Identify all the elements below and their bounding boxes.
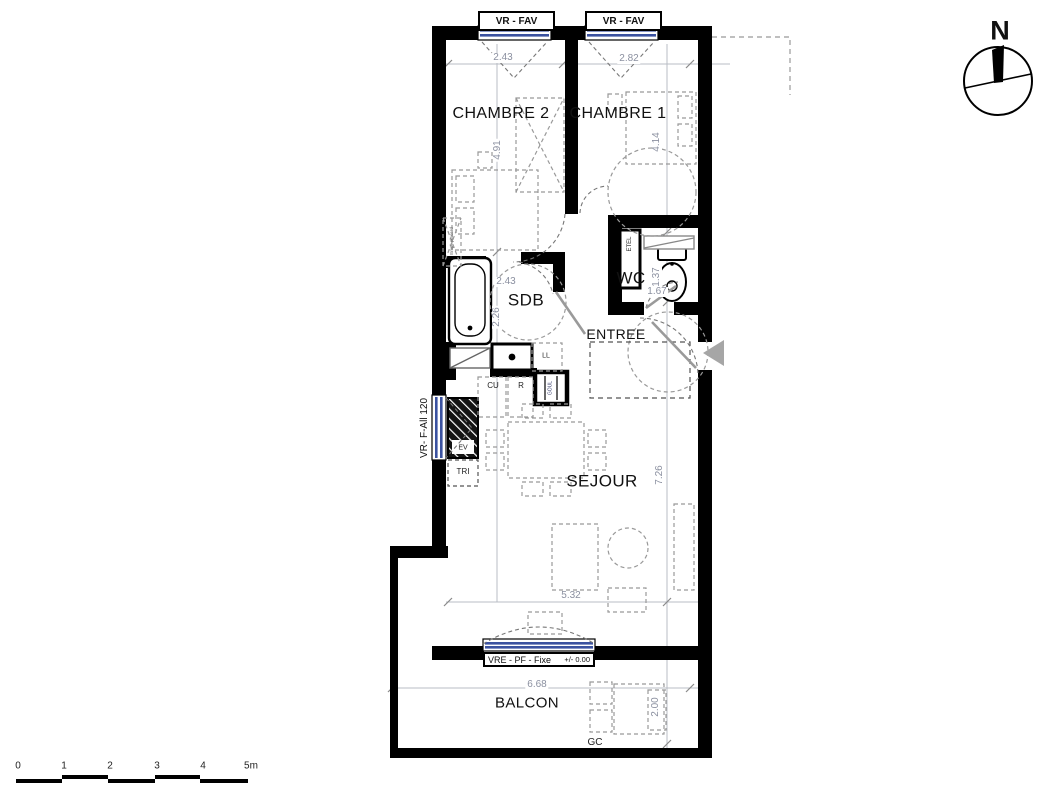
window-label-fav-1: VR - FAV	[478, 11, 555, 31]
dim-chambre1-height: 4.14	[652, 130, 662, 153]
fixture-label-cu: CU	[487, 382, 499, 390]
dim-chambre2-height: 4.91	[493, 138, 503, 161]
scale-tick-3: 3	[154, 761, 160, 772]
dim-window-chambre2: 2.43	[491, 53, 514, 63]
neighbour-outline	[712, 37, 790, 95]
scale-tick-2: 2	[107, 761, 113, 772]
label-gc: GC	[588, 738, 603, 748]
scale-tick-0: 0	[15, 761, 21, 772]
window-label-kitchen: VR- F-All 120	[420, 398, 430, 458]
room-label-wc: WC	[616, 270, 645, 287]
floor-plan-page: VR - FAV VR - FAV VRE - PF - Fixe +/- 0.…	[0, 0, 1054, 800]
room-label-sdb: SDB	[508, 292, 544, 309]
fixture-label-r: R	[518, 382, 524, 390]
room-label-entree: ENTREE	[586, 327, 645, 341]
bathtub	[449, 258, 491, 344]
dim-balcon-depth: 2.00	[651, 695, 661, 718]
dim-sejour-height: 7.26	[655, 463, 665, 486]
wc-shelf	[644, 236, 694, 249]
room-label-sejour: SEJOUR	[566, 473, 637, 490]
dim-window-chambre1: 2.82	[617, 54, 640, 64]
washbasin	[492, 344, 532, 370]
level-marker: +/- 0.00	[564, 655, 590, 664]
north-label: N	[990, 16, 1010, 47]
fixture-label-ll: LL	[542, 353, 550, 360]
scale-tick-1: 1	[61, 761, 67, 772]
window-label-fav-2: VR - FAV	[585, 11, 662, 31]
scale-tick-4: 4	[200, 761, 206, 772]
room-label-chambre1: CHAMBRE 1	[570, 106, 667, 122]
fixture-label-tri: TRI	[457, 468, 470, 476]
fixture-label-etel: ETEL	[627, 236, 633, 251]
scale-tick-5: 5m	[244, 761, 258, 772]
fixture-label-goul: GOUL	[549, 380, 554, 396]
fixture-label-placard: Empl. placard	[450, 227, 455, 255]
dim-sejour-width: 5.32	[559, 591, 582, 601]
dim-wc-width: 1.67	[645, 287, 668, 297]
scale-bar	[16, 775, 248, 783]
dim-balcon-width: 6.68	[525, 680, 548, 690]
fixture-label-ev: EV	[458, 445, 467, 452]
window-label-living: VRE - PF - Fixe +/- 0.00	[483, 652, 595, 667]
room-label-balcon: BALCON	[495, 696, 559, 711]
window-label-living-text: VRE - PF - Fixe	[488, 655, 551, 665]
room-label-chambre2: CHAMBRE 2	[453, 106, 550, 122]
north-compass-icon	[964, 45, 1032, 115]
dim-sdb-height: 2.26	[492, 305, 502, 328]
dim-sdb-width: 2.43	[494, 277, 517, 287]
bath-cabinet	[450, 348, 490, 368]
